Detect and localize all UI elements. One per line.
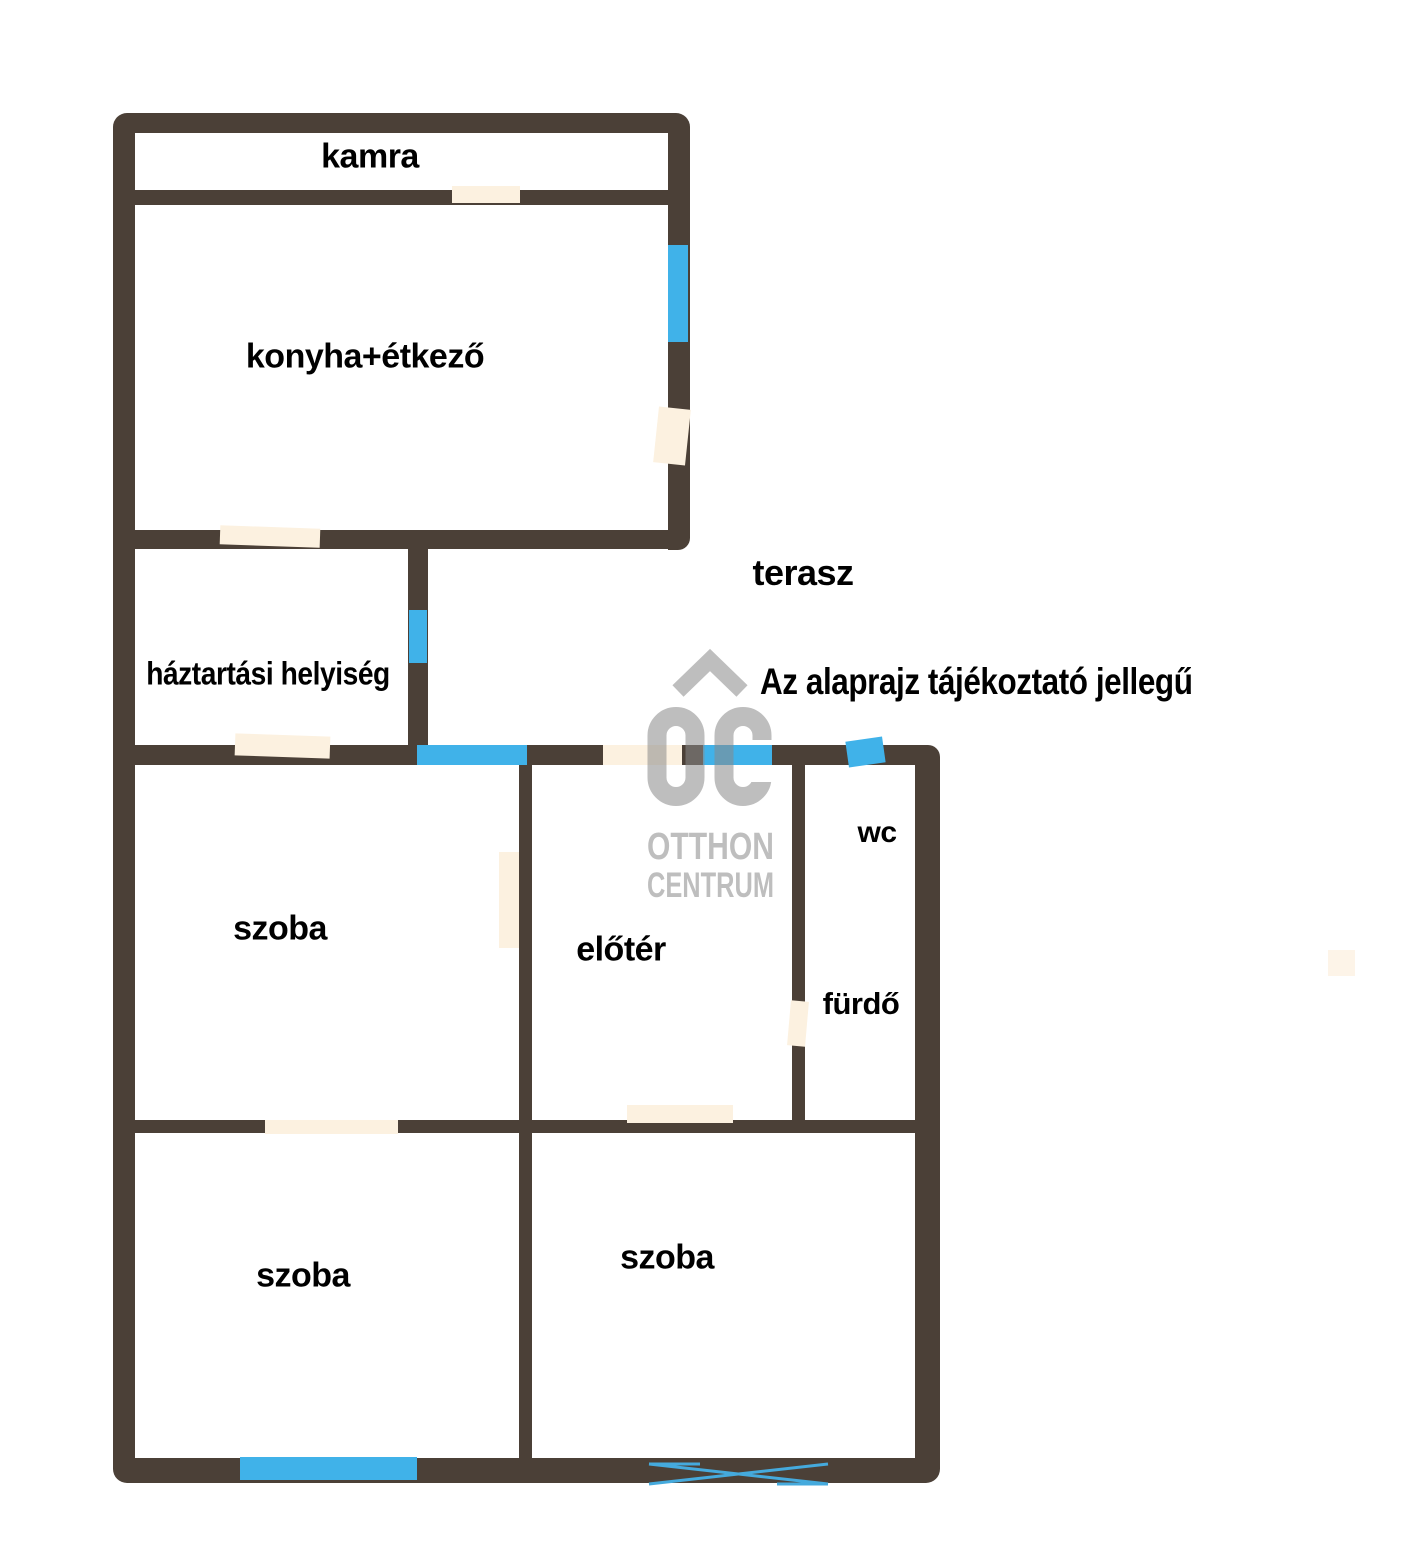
- wall-konyha-bottom: [135, 530, 668, 549]
- room-label-konyha-etkezo: konyha+étkező: [246, 338, 484, 377]
- door-haztartasi-szoba: [235, 733, 331, 758]
- watermark-otthon: OTTHON: [647, 826, 774, 868]
- window-eloter: [703, 745, 772, 765]
- door-kamra: [452, 186, 520, 203]
- room-label-szoba-also-bal: szoba: [256, 1257, 350, 1296]
- disclaimer-text: Az alaprajz tájékoztató jellegű: [760, 661, 1192, 703]
- floor-plan: OTTHON CENTRUM kamra konyha+étkező házta…: [0, 0, 1420, 1560]
- door-eloter-szoba-also: [627, 1105, 733, 1123]
- room-label-wc: wc: [857, 816, 896, 850]
- room-label-terasz: terasz: [752, 552, 853, 594]
- roof-chevron-icon: [678, 660, 742, 691]
- door-eloter-terasz: [603, 745, 682, 765]
- wall-eloter-left: [519, 765, 532, 1133]
- otthon-centrum-watermark: OTTHON CENTRUM: [647, 660, 774, 905]
- door-szoba-felso-also: [265, 1120, 398, 1134]
- room-label-furdo: fürdő: [823, 986, 900, 1022]
- watermark-centrum: CENTRUM: [647, 866, 774, 905]
- door-szoba-eloter: [499, 852, 519, 948]
- wall-kamra-divider: [135, 190, 668, 205]
- room-label-kamra: kamra: [321, 138, 419, 177]
- door-konyha-terasz: [653, 406, 691, 465]
- wall-outer-top: [113, 113, 690, 133]
- room-label-szoba-also-jobb: szoba: [620, 1239, 714, 1278]
- wall-outer-left: [113, 133, 135, 1458]
- window-konyha: [668, 245, 688, 342]
- window-szoba-felso: [417, 745, 527, 765]
- wall-outer-right: [915, 745, 940, 1458]
- window-haztartasi: [409, 610, 427, 663]
- room-label-haztartasi-helyiseg: háztartási helyiség: [146, 656, 390, 693]
- door-marker-floating: [1328, 950, 1355, 976]
- overlay-graphics: OTTHON CENTRUM: [0, 0, 1420, 1560]
- wall-eloter-right: [792, 765, 805, 1133]
- wall-szoba-divider: [519, 1133, 532, 1458]
- door-eloter-furdo: [787, 1000, 809, 1046]
- window-wc: [845, 737, 885, 768]
- window-szoba-also-bal: [240, 1457, 417, 1480]
- door-konyha-haztartasi: [220, 525, 321, 547]
- room-label-szoba-felso: szoba: [233, 910, 327, 949]
- room-label-eloter: előtér: [576, 931, 666, 970]
- wall-outer-bottom: [113, 1458, 940, 1483]
- wall-middle-lower: [135, 1120, 940, 1133]
